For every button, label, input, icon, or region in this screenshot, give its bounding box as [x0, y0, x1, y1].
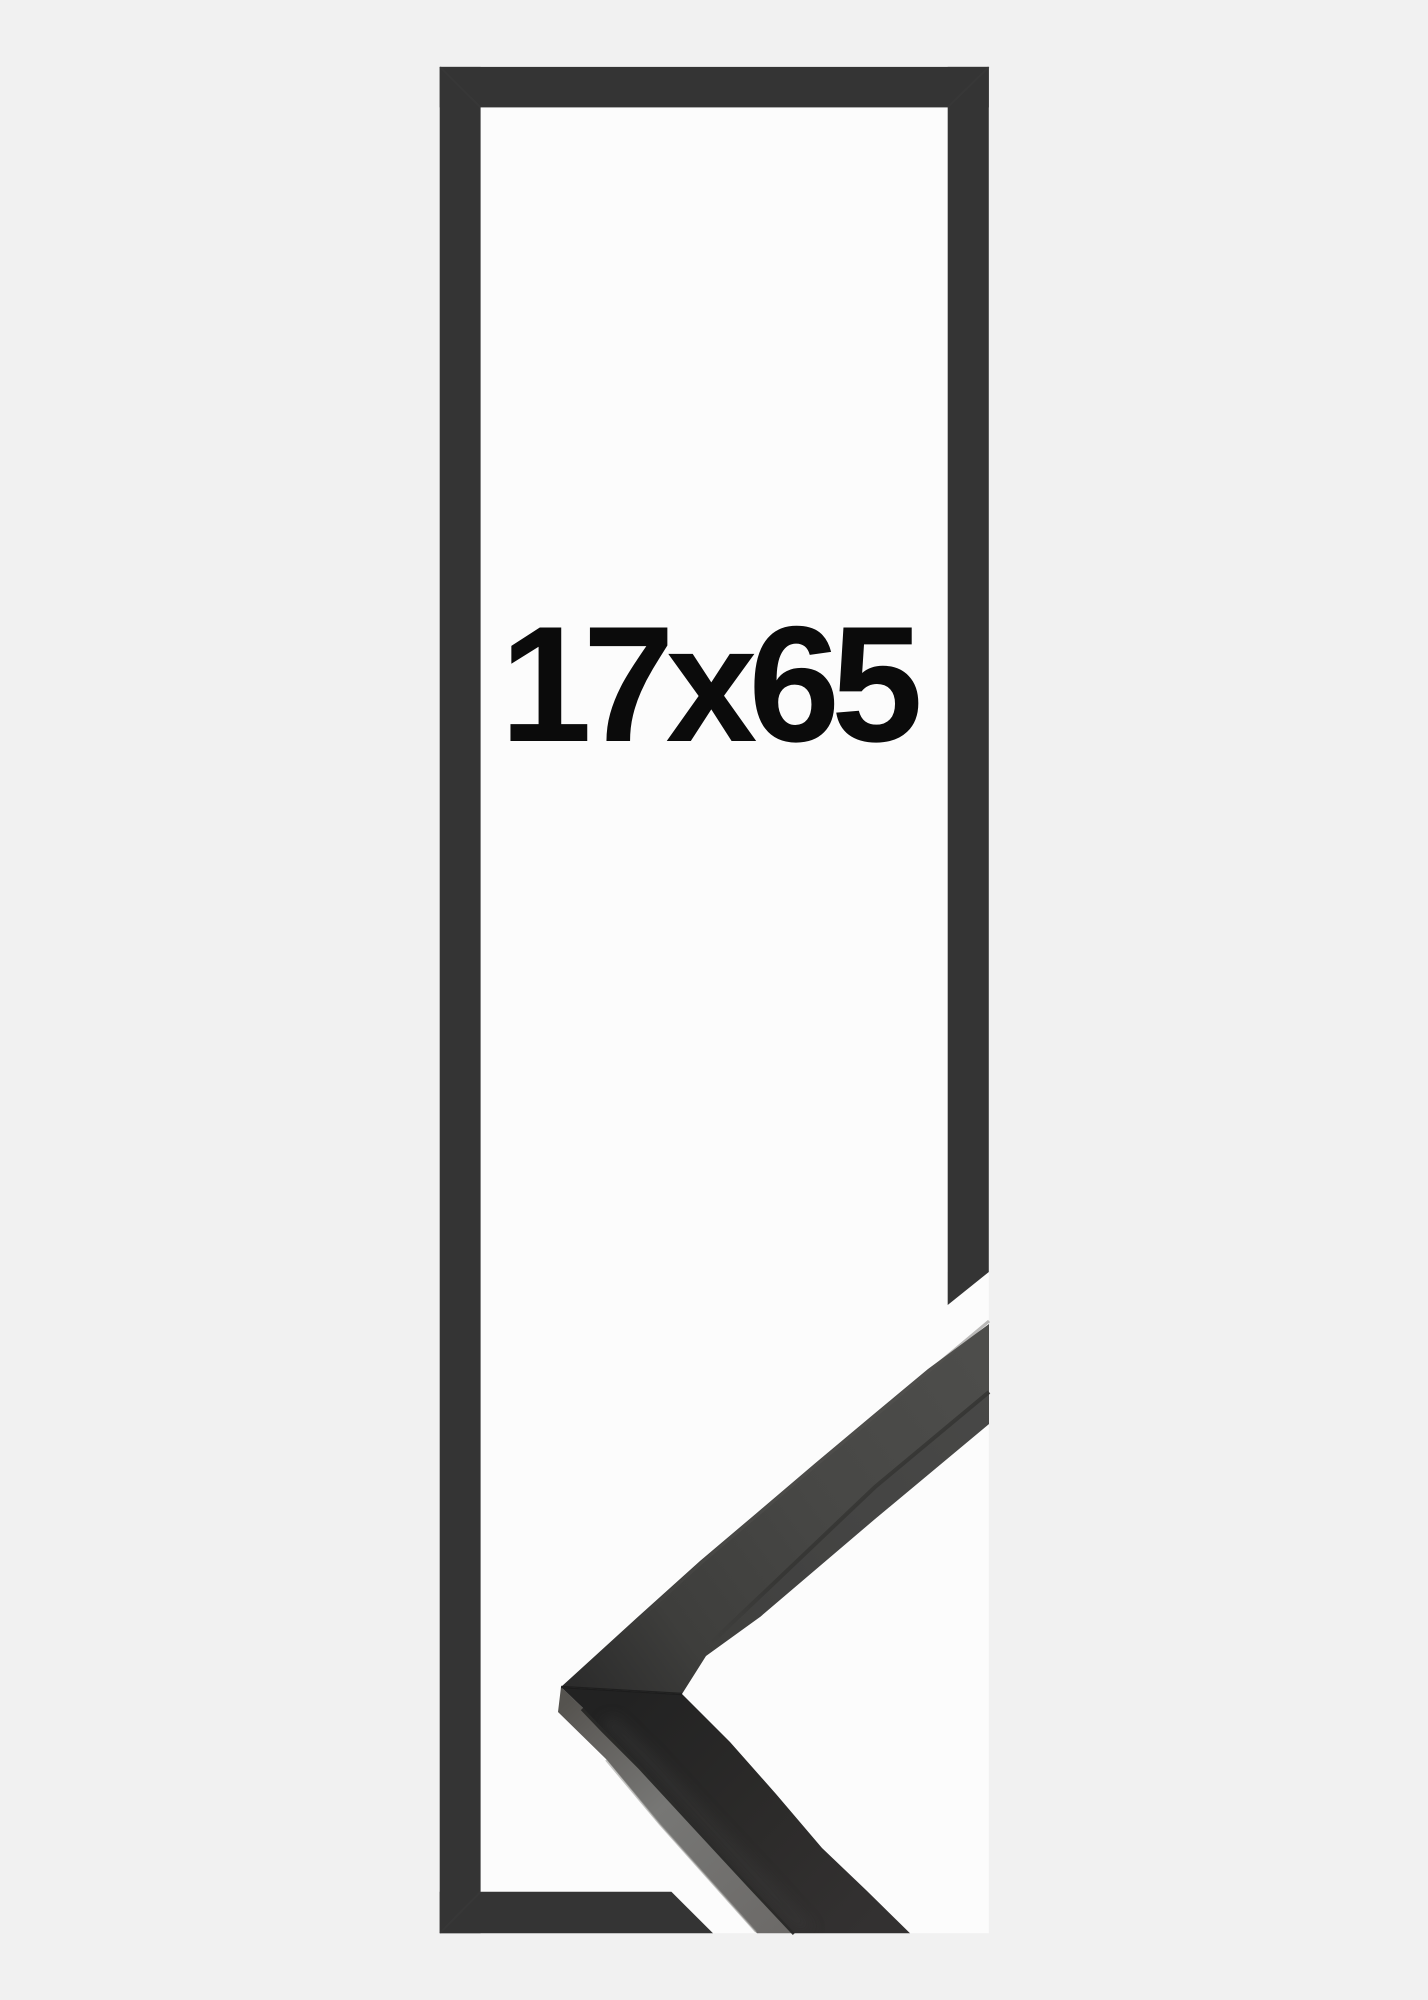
svg-text:17x65: 17x65	[500, 592, 919, 776]
